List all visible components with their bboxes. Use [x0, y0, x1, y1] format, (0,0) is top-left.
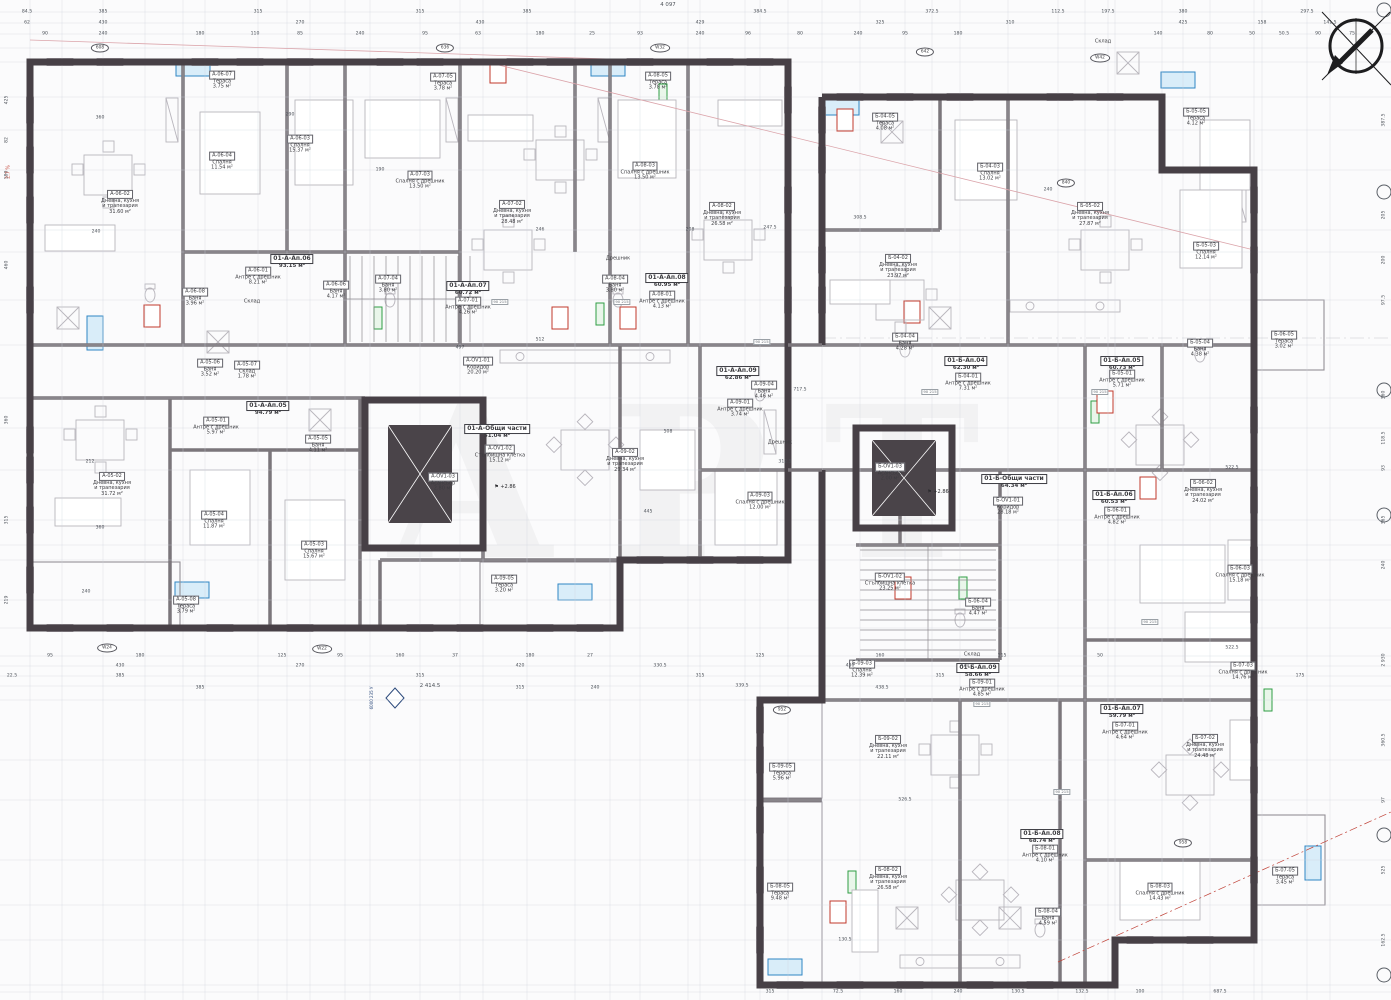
dining-table [931, 735, 979, 775]
dimension: 372.5 [925, 10, 938, 15]
dimension: 63 [475, 32, 481, 37]
dimension: 90 [42, 32, 48, 37]
dimension: 240 [696, 32, 705, 37]
bed [618, 100, 676, 178]
dimension: 180 [136, 654, 145, 659]
slope-note: 2.7 % [7, 165, 12, 179]
dimension: 219 [5, 596, 10, 605]
dimension: 75 [1349, 32, 1355, 37]
wardrobe-cross [764, 410, 776, 454]
inner-dimension: 246 [536, 228, 545, 233]
dimension: 27 [587, 654, 593, 659]
dining-table [956, 880, 1004, 920]
dimension: 365 [1382, 516, 1387, 525]
chair [1100, 272, 1111, 283]
chair [1069, 239, 1080, 250]
ac-unit [1161, 72, 1195, 88]
dimension: 80 [797, 32, 803, 37]
chair [919, 744, 930, 755]
door-tag: 90 215 [1053, 789, 1070, 795]
dining-table [84, 155, 132, 195]
bed [285, 500, 345, 580]
window-tag: 958 [1174, 839, 1192, 848]
dimension: 360 [1382, 391, 1387, 400]
sofa [1200, 120, 1250, 190]
dimension: 315 [766, 990, 775, 995]
dimension: 325 [876, 21, 885, 26]
dimension: 2 930 [1382, 653, 1387, 666]
chair [972, 864, 988, 880]
dimension: 297.5 [1300, 10, 1313, 15]
inner-dimension: 240 [92, 230, 101, 235]
chair [926, 289, 937, 300]
vent-shaft [596, 303, 604, 325]
inner-dimension: 212 [86, 460, 95, 465]
dimension: 180 [196, 32, 205, 37]
window-tag: 642 [916, 48, 934, 57]
chair [586, 149, 597, 160]
inner-dimension: 438.5 [875, 686, 888, 691]
dimension: 140 [1154, 32, 1163, 37]
dimension: 315 [936, 674, 945, 679]
reference-line [470, 58, 1254, 250]
bed [190, 470, 250, 545]
chair [72, 164, 83, 175]
sofa [640, 430, 695, 490]
dimension: 125 [756, 654, 765, 659]
inner-dimension: 308.5 [853, 216, 866, 221]
dining-table [76, 420, 124, 460]
wardrobe-cross [166, 98, 178, 142]
sofa [45, 225, 115, 251]
dimension: 141.5 [1323, 21, 1336, 26]
chair [95, 462, 106, 473]
sofa [55, 498, 121, 526]
sofa [468, 115, 533, 141]
chair [1131, 239, 1142, 250]
sofa [718, 100, 782, 126]
dimension: 240 [854, 32, 863, 37]
chair [941, 887, 957, 903]
dimension: 50 [1097, 654, 1103, 659]
dimension: 339.5 [735, 684, 748, 689]
dimension: 95 [902, 32, 908, 37]
section-marker-text: 6000 235 У [370, 687, 375, 710]
chair [472, 239, 483, 250]
bed [200, 112, 260, 194]
riser-shaft [552, 307, 568, 329]
inner-dimension: 240 [82, 590, 91, 595]
dimension: 425 [5, 96, 10, 105]
sink [916, 958, 924, 966]
grid-bubble [1377, 3, 1391, 17]
dimension: 460 [5, 261, 10, 270]
inner-dimension: 512 [536, 338, 545, 343]
dimension: 315 [696, 674, 705, 679]
chair [1100, 216, 1111, 227]
dimension: 82 [5, 137, 10, 143]
dimension: 162.5 [1382, 933, 1387, 946]
dimension: 50 [1249, 32, 1255, 37]
inner-dimension: 385 [196, 686, 205, 691]
dimension: 240 [954, 990, 963, 995]
chair [103, 197, 114, 208]
door-tag: 90 215 [973, 701, 990, 707]
kitchen-counter [500, 350, 670, 363]
dimension: 85 [297, 32, 303, 37]
dimension: 130.5 [1011, 990, 1024, 995]
riser-shaft [830, 901, 846, 923]
chair [103, 141, 114, 152]
dimension: 240 [356, 32, 365, 37]
dimension: 525 [1382, 866, 1387, 875]
dimension: 37 [452, 654, 458, 659]
dining-table [536, 140, 584, 180]
chair [754, 229, 765, 240]
dimension: 429 [696, 21, 705, 26]
dimension: 315 [416, 674, 425, 679]
wardrobe-cross [598, 98, 610, 142]
chair [1183, 432, 1199, 448]
window-tag: W42 [1090, 54, 1110, 63]
chair [577, 414, 593, 430]
chair [503, 216, 514, 227]
ac-unit [768, 959, 802, 975]
dimension: 380 [1179, 10, 1188, 15]
dimension: 315 [416, 10, 425, 15]
window-tag: 840 [1057, 179, 1075, 188]
inner-dimension: 360 [96, 526, 105, 531]
section-marker-diamond [386, 688, 404, 708]
chair [895, 266, 906, 277]
chair [972, 920, 988, 936]
inner-dimension: 240 [1044, 188, 1053, 193]
dimension: 430 [99, 21, 108, 26]
terrace-outline [1254, 300, 1324, 370]
dimension: 387.5 [1382, 113, 1387, 126]
floor-plan-drawing [0, 0, 1391, 1000]
ac-unit [1305, 846, 1321, 880]
chair [534, 239, 545, 250]
chair [1003, 887, 1019, 903]
dimension: 270 [296, 21, 305, 26]
dimension: 180 [536, 32, 545, 37]
window-tag: 636 [436, 44, 454, 53]
dimension: 315 [254, 10, 263, 15]
dimension: 420 [516, 664, 525, 669]
chair [1182, 795, 1198, 811]
floor-plan-sheet: АРТ А-06-02Дневна, кухня и т [0, 0, 1391, 1000]
wardrobe-cross [446, 98, 458, 142]
chair [134, 164, 145, 175]
bed [1185, 612, 1255, 662]
dimension: 310 [1006, 21, 1015, 26]
dimension: 160 [894, 990, 903, 995]
dimension: 93 [1382, 465, 1387, 471]
dimension: 330.5 [653, 664, 666, 669]
door-tag: 90 215 [491, 299, 508, 305]
hob [1096, 302, 1104, 310]
toilet [1035, 923, 1045, 937]
chair [1121, 432, 1137, 448]
inner-dimension: 526.5 [898, 798, 911, 803]
dimension: 315 [5, 516, 10, 525]
dimension: 118.5 [1382, 431, 1387, 444]
door-tag: 90 215 [921, 389, 938, 395]
dimension: 197.5 [1101, 10, 1114, 15]
terrace-outline [30, 562, 180, 626]
dimension: 93 [637, 32, 643, 37]
inner-dimension: 522.5 [1225, 466, 1238, 471]
dimension: 50.5 [1279, 32, 1289, 37]
dimension: 270 [296, 664, 305, 669]
inner-dimension: 360 [96, 116, 105, 121]
bed [1120, 860, 1200, 920]
terrace-outline [760, 702, 822, 798]
inner-dimension: 130.5 [838, 938, 851, 943]
dimension: 385 [116, 674, 125, 679]
window-tag: W22 [312, 645, 332, 654]
dimension: 125 [278, 654, 287, 659]
door-tag: 90 215 [613, 299, 630, 305]
hob [996, 958, 1004, 966]
chair [546, 437, 562, 453]
sink [516, 353, 524, 361]
window-tag: W32 [650, 44, 670, 53]
dimension: 132.5 [1075, 990, 1088, 995]
chair [1182, 739, 1198, 755]
inner-dimension: 190 [376, 168, 385, 173]
dimension: 72.5 [833, 990, 843, 995]
dimension: 160 [396, 654, 405, 659]
chair [1151, 762, 1167, 778]
dimension: 175 [1296, 674, 1305, 679]
dimension: 97 [1382, 797, 1387, 803]
chair [577, 470, 593, 486]
dining-table [1166, 755, 1214, 795]
inner-dimension: 497 [456, 346, 465, 351]
dimension: 180 [954, 32, 963, 37]
inner-dimension: 247.5 [763, 226, 776, 231]
dimension: 240 [1382, 561, 1387, 570]
dimension: 385 [99, 10, 108, 15]
dimension: 110 [251, 32, 260, 37]
dimension: 62 [24, 21, 30, 26]
inner-dimension: 208 [686, 228, 695, 233]
dimension: 84.5 [22, 10, 32, 15]
chair [64, 429, 75, 440]
grid-bubble [1377, 828, 1391, 842]
door-tag: 90 215 [753, 339, 770, 345]
terrace-outline [480, 562, 620, 626]
hob [646, 353, 654, 361]
dimension: 22.5 [7, 674, 17, 679]
dining-table [484, 230, 532, 270]
dimension: 385 [523, 10, 532, 15]
inner-dimension: 315 [516, 686, 525, 691]
chair [95, 406, 106, 417]
dimension: 430 [476, 21, 485, 26]
dimension: 425 [1179, 21, 1188, 26]
grid-bubble [1377, 185, 1391, 199]
dimension: 360 [5, 416, 10, 425]
window-tag: W24 [97, 644, 117, 653]
dimension: 97.5 [1382, 295, 1387, 305]
dimension: 430 [846, 664, 855, 669]
overall-dimension: 4 097 [660, 2, 675, 8]
inner-dimension: 445 [644, 510, 653, 515]
chair [895, 322, 906, 333]
dimension: 25 [589, 32, 595, 37]
chair [126, 429, 137, 440]
dimension: 180 [526, 654, 535, 659]
kitchen-counter [1010, 300, 1120, 312]
sink [1026, 302, 1034, 310]
dimension: 100 [1136, 990, 1145, 995]
chair [1152, 409, 1168, 425]
riser-shaft [620, 307, 636, 329]
sofa [1228, 540, 1254, 600]
riser-shaft [144, 305, 160, 327]
chair [524, 149, 535, 160]
bed [715, 470, 777, 545]
chair [555, 182, 566, 193]
vent-shaft [374, 307, 382, 329]
dining-table [561, 430, 609, 470]
terrace-outline [760, 802, 822, 983]
window-tag: 952 [773, 706, 791, 715]
dimension: 158 [1258, 21, 1267, 26]
dimension: 96 [745, 32, 751, 37]
dimension: 80 [1207, 32, 1213, 37]
grid-bubble [1377, 968, 1391, 982]
dimension: 205 [1382, 211, 1387, 220]
dimension: 420 [961, 664, 970, 669]
inner-dimension: 508 [664, 430, 673, 435]
bed [1180, 190, 1242, 268]
inner-dimension: 717.5 [793, 388, 806, 393]
chair [1213, 762, 1229, 778]
bed [365, 100, 440, 158]
toilet [1195, 348, 1205, 362]
dining-table [1081, 230, 1129, 270]
chair [723, 262, 734, 273]
bed [1140, 545, 1225, 603]
dimension: 90 [1315, 32, 1321, 37]
elevation-mark: ⚑ +2.86 [494, 484, 515, 490]
dining-table [1136, 425, 1184, 465]
dimension: 384.5 [753, 10, 766, 15]
door-tag: 90 215 [1141, 619, 1158, 625]
overall-dimension: 2 414.5 [420, 683, 441, 689]
sofa [852, 890, 878, 952]
chair [503, 272, 514, 283]
dimension: 95 [337, 654, 343, 659]
dimension: 95 [422, 32, 428, 37]
door-tag: 90 215 [1091, 389, 1108, 395]
dimension: 115 [998, 654, 1007, 659]
inner-dimension: 290 [286, 113, 295, 118]
chair [723, 206, 734, 217]
riser-shaft [1140, 477, 1156, 499]
chair [555, 126, 566, 137]
dimension: 430 [116, 664, 125, 669]
inner-dimension: 240 [591, 686, 600, 691]
elevation-mark: ⚑ +2.86 [927, 489, 948, 495]
chair [981, 744, 992, 755]
dimension: 95 [47, 654, 53, 659]
dimension: 687.5 [1213, 990, 1226, 995]
dimension: 160 [876, 654, 885, 659]
inner-dimension: 522.5 [1225, 646, 1238, 651]
dimension: 360.5 [1382, 733, 1387, 746]
window-tag: 608 [91, 44, 109, 53]
inner-dimension: 312.5 [778, 460, 791, 465]
riser-shaft [837, 109, 853, 131]
dimension: 112.5 [1051, 10, 1064, 15]
dimension: 200 [1382, 256, 1387, 265]
dimension: 240 [99, 32, 108, 37]
